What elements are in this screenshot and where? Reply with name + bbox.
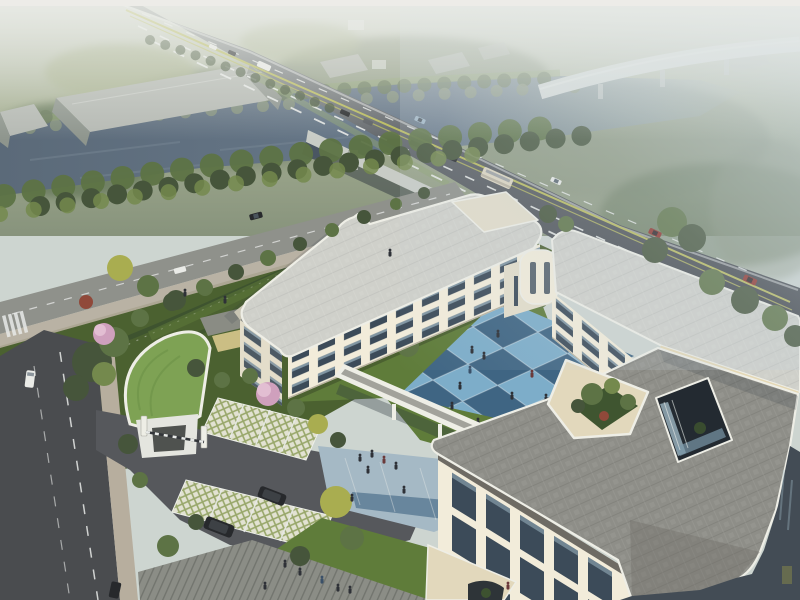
aerial-rendering: Aerial architectural rendering of a crea…	[0, 0, 800, 600]
walkway-column	[392, 404, 396, 420]
walkway-column	[438, 424, 442, 438]
rendering-stage: Aerial architectural rendering of a crea…	[0, 0, 800, 600]
top-haze	[0, 0, 800, 140]
sky-strip	[0, 0, 800, 6]
gate-pillar	[201, 426, 207, 448]
